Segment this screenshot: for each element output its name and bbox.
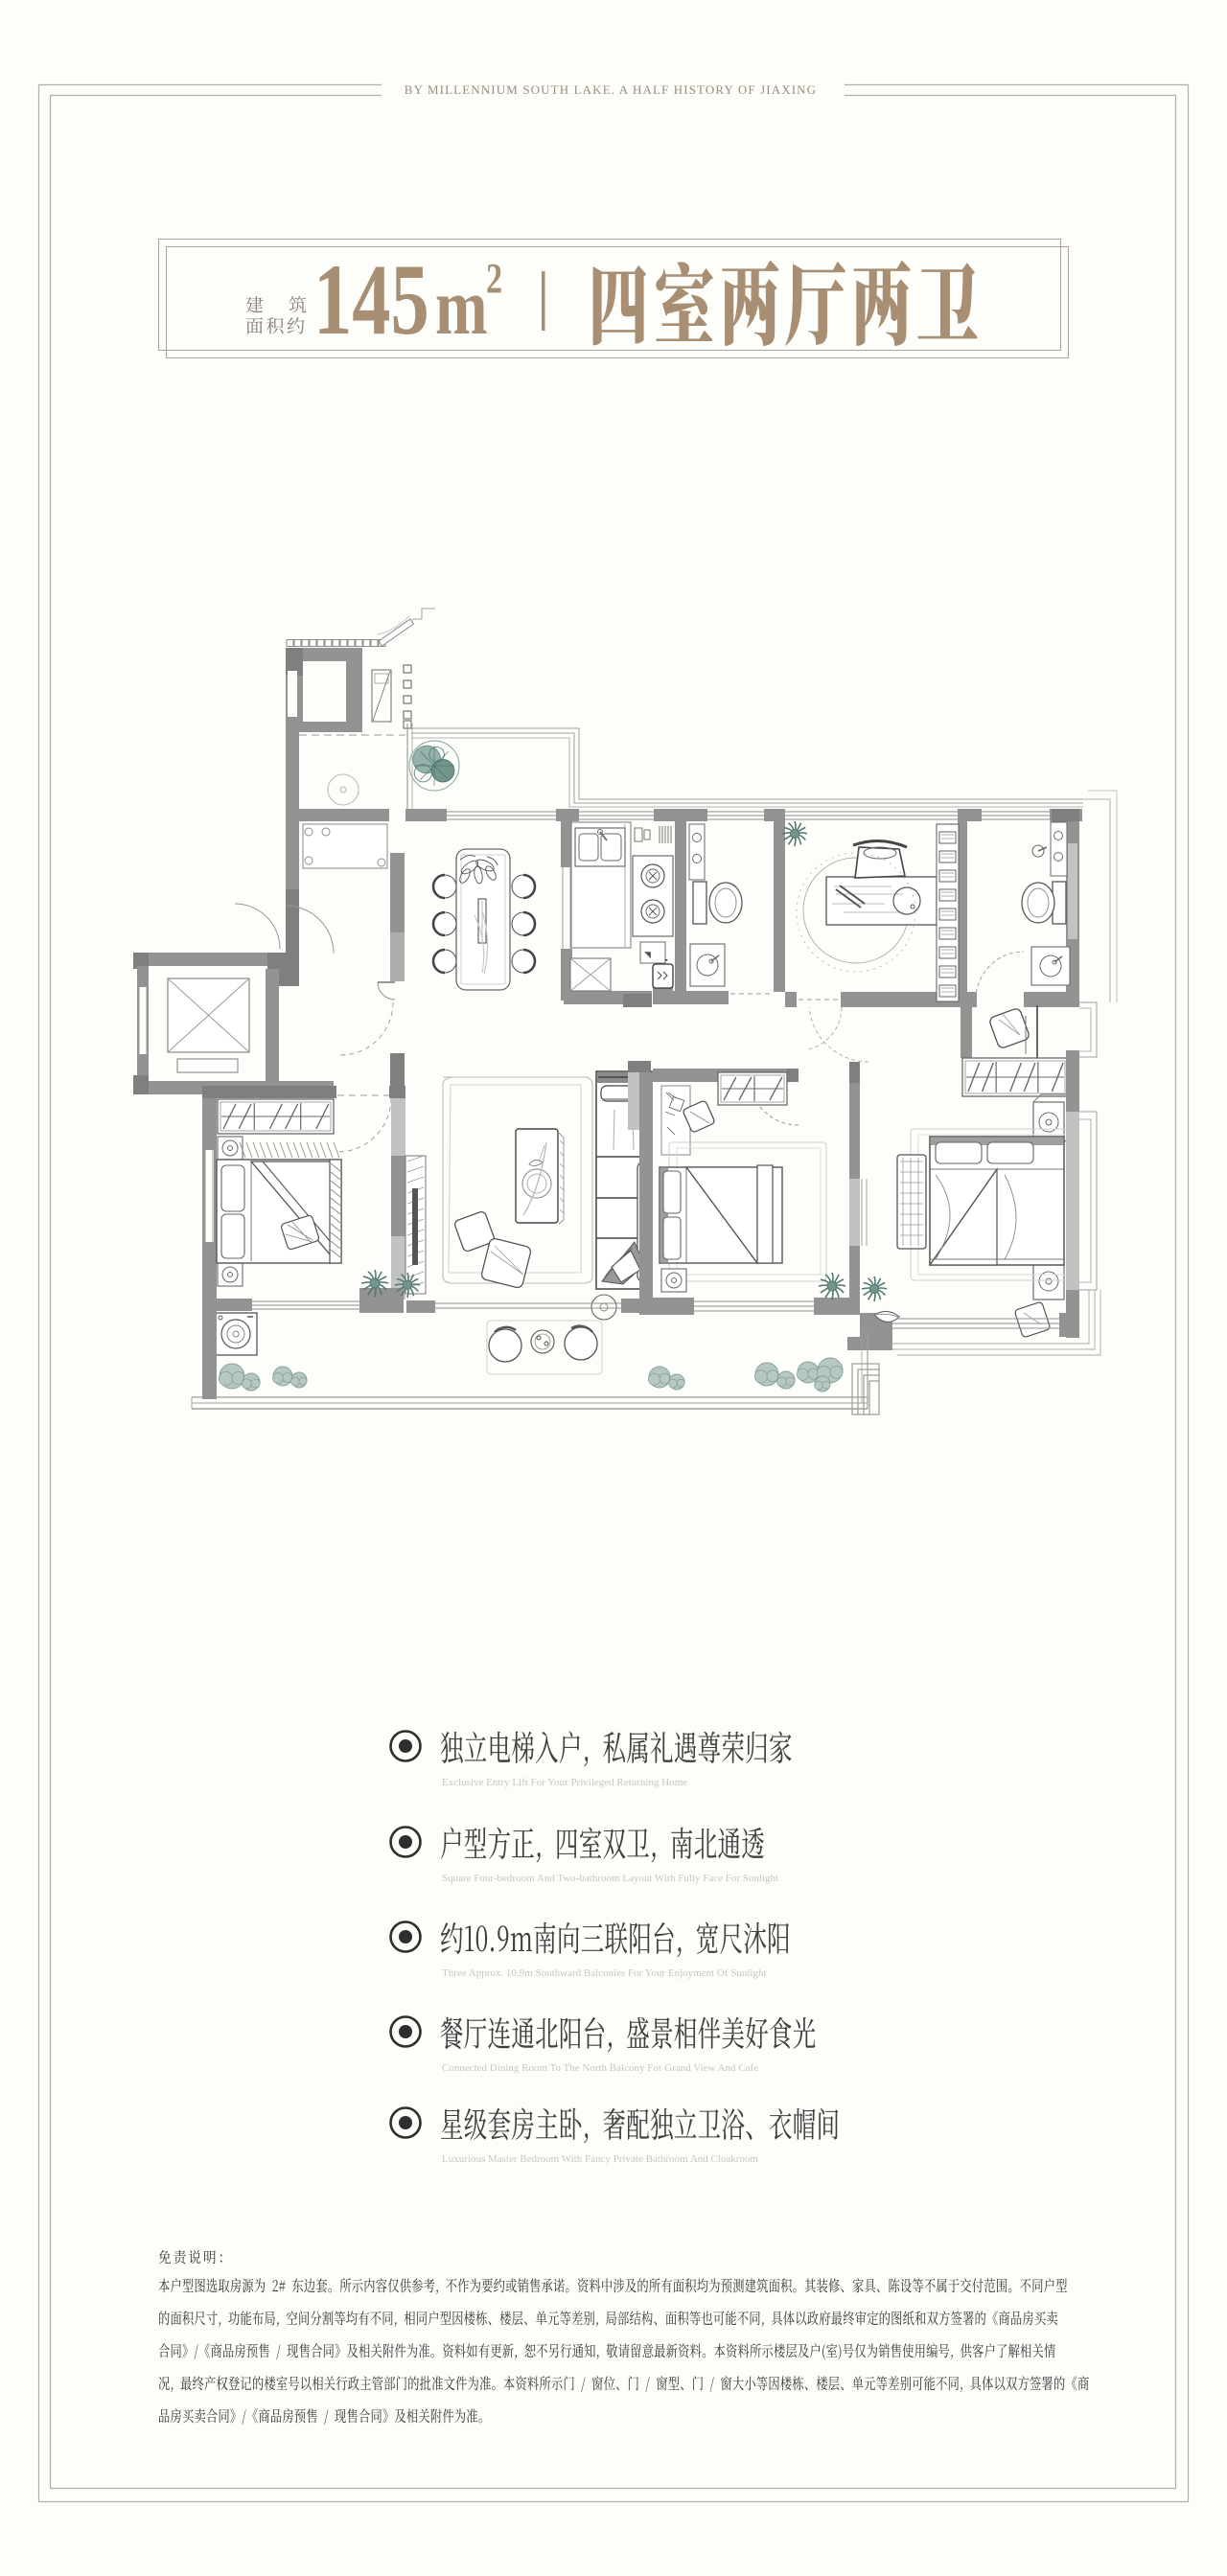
svg-text:Connected Dining Room To The N: Connected Dining Room To The North Balco… — [442, 2062, 758, 2074]
svg-text:Three Approx. 10.9m Southward: Three Approx. 10.9m Southward Balconies … — [442, 1967, 767, 1979]
svg-text:Square Four-bedroom And Two-ba: Square Four-bedroom And Two-bathroom Lay… — [442, 1873, 778, 1884]
svg-text:◥: ◥ — [644, 950, 651, 959]
svg-text:BY MILLENNIUM SOUTH LAKE. A HA: BY MILLENNIUM SOUTH LAKE. A HALF HISTORY… — [405, 82, 817, 97]
svg-text:145: 145 — [313, 244, 429, 356]
svg-text:m: m — [435, 263, 488, 352]
svg-text:Exclusive Entry Lift For Your: Exclusive Entry Lift For Your Privileged… — [442, 1777, 687, 1788]
svg-text:2: 2 — [486, 255, 502, 302]
svg-text:Luxurious Master Bedroom With: Luxurious Master Bedroom With Fancy Priv… — [442, 2153, 758, 2165]
